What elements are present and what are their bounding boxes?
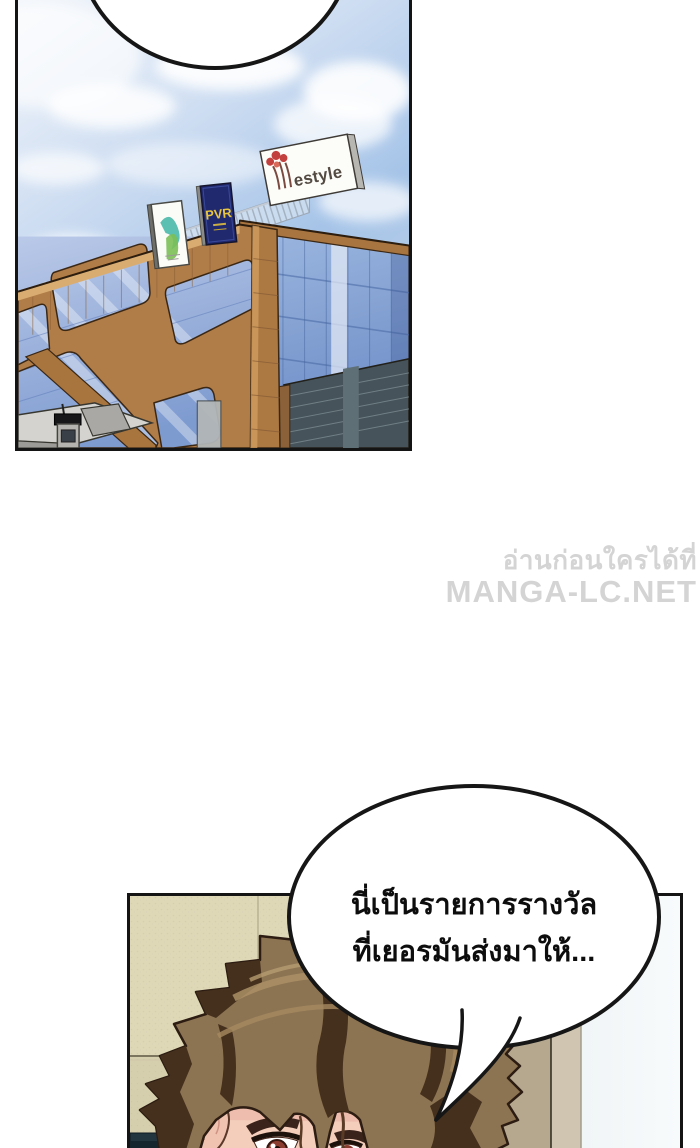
watermark-line-thai: อ่านก่อนใครได้ที่ xyxy=(420,546,697,575)
right-eye xyxy=(330,1142,362,1148)
reward-bubble-line1: นี่เป็นรายการรางวัล xyxy=(351,882,597,929)
reward-bubble-line2: ที่เยอรมันส่งมาให้... xyxy=(351,929,597,976)
leaf-sign xyxy=(147,201,189,269)
speech-bubble-tail xyxy=(410,1002,550,1132)
comic-page: PVR estyle xyxy=(0,0,700,1148)
watermark-line-site: MANGA-LC.NET xyxy=(420,575,697,610)
left-eye xyxy=(252,1134,300,1148)
pvr-sign: PVR xyxy=(196,183,236,245)
watermark: อ่านก่อนใครได้ที่ MANGA-LC.NET xyxy=(420,546,697,610)
pvr-sign-text: PVR xyxy=(205,205,233,223)
